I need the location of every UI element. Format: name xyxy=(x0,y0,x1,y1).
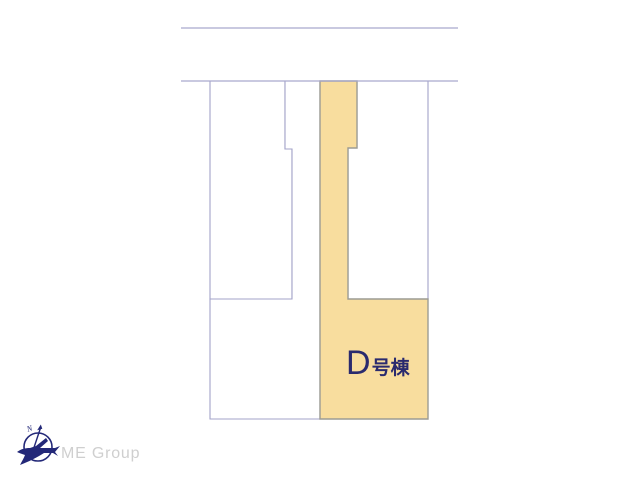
me-group-logo: N xyxy=(13,423,63,469)
compass-needle-arrow-icon xyxy=(37,425,42,431)
site-plan-canvas: D 号棟 N ME Group xyxy=(0,0,640,480)
lot-d-label: D 号棟 xyxy=(346,346,410,380)
lot-d-label-letter: D xyxy=(346,346,371,380)
company-name-text: ME Group xyxy=(61,445,140,463)
compass-north-label: N xyxy=(25,423,34,434)
site-plan-drawing xyxy=(0,0,640,480)
lot-upper-right-outline xyxy=(348,81,428,299)
lot-upper-left-outline xyxy=(210,81,292,299)
lot-d-label-suffix: 号棟 xyxy=(372,359,410,378)
